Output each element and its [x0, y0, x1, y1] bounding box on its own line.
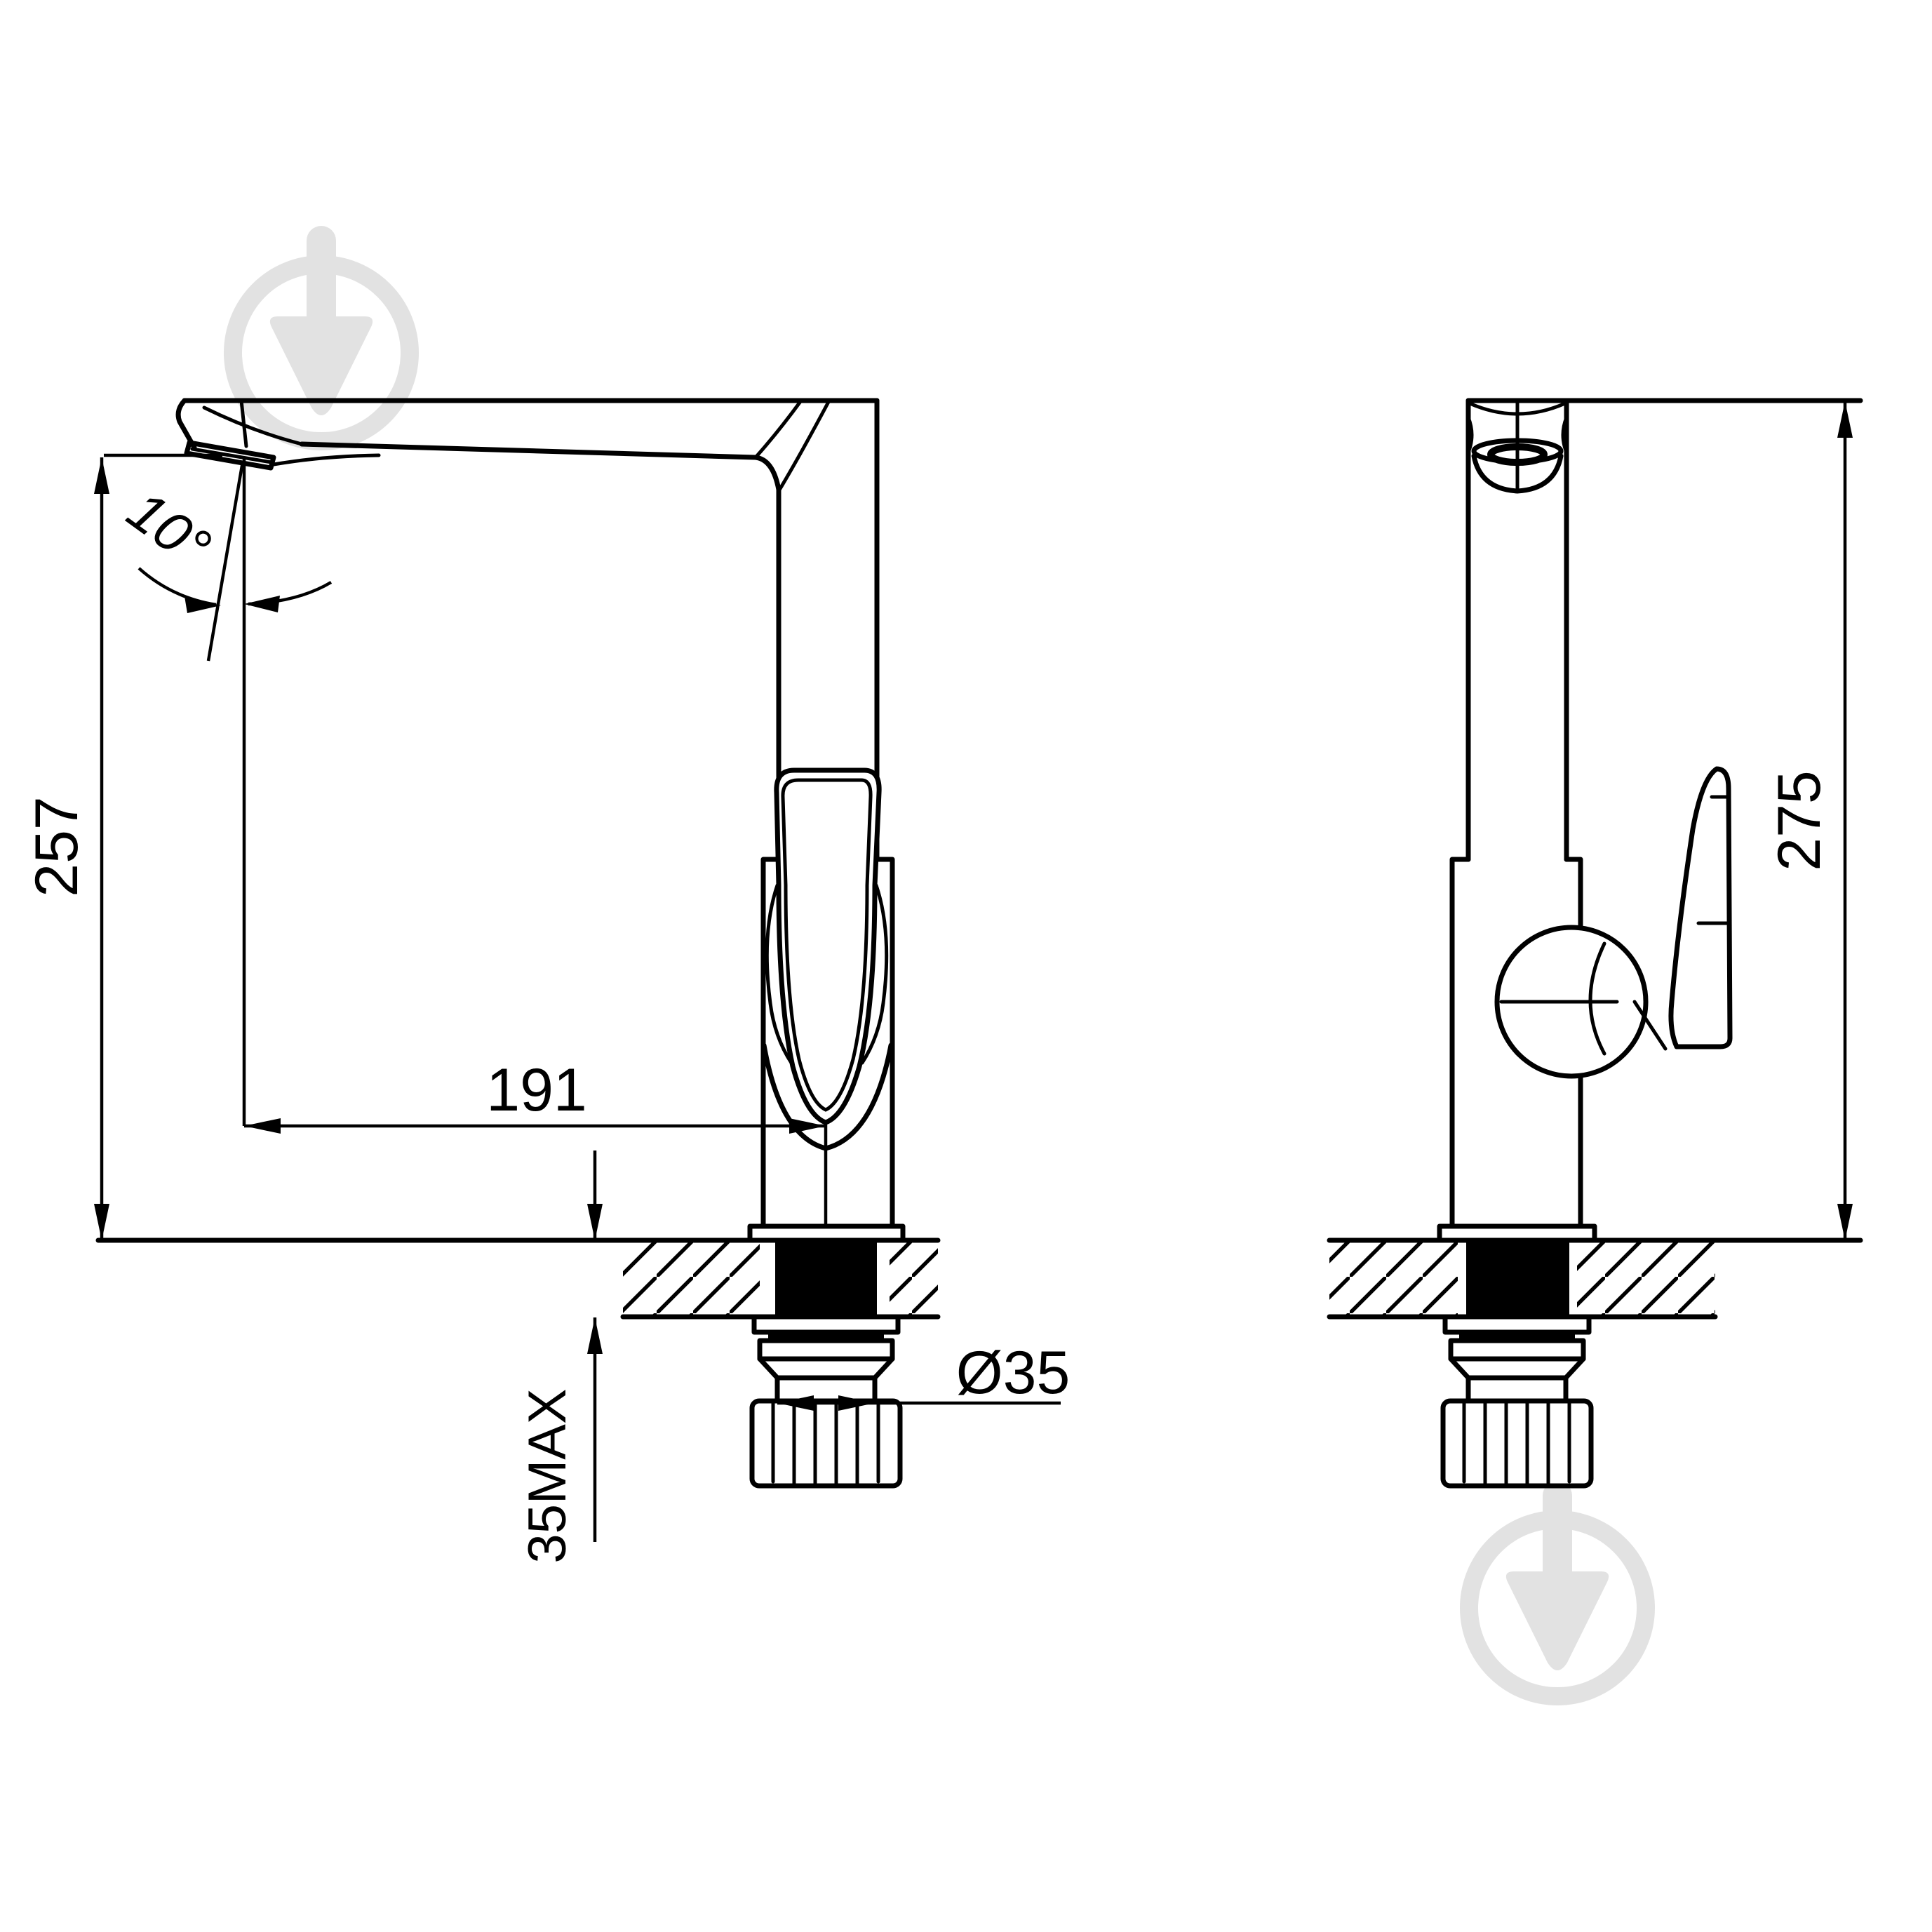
threaded-shank: [1466, 1240, 1569, 1317]
dimension-label-angle: 10°: [116, 478, 222, 579]
mounting-hardware: [1443, 1317, 1591, 1486]
dimension-label-spout-height: 257: [23, 796, 90, 897]
dimension-label-spout-reach: 191: [486, 1056, 587, 1124]
deck-thickness-dimension: 35MAX: [518, 1151, 603, 1564]
total-height-dimension: 275: [1766, 401, 1853, 1240]
base-flange: [1440, 1226, 1595, 1240]
height-dimension: 257: [23, 455, 222, 1240]
valve-housing: [1497, 927, 1665, 1076]
dimension-label-hole-diameter: Ø35: [956, 1339, 1071, 1407]
faucet-technical-drawing: 10° 257 191 35MAX: [0, 0, 1932, 1932]
side-view: 10° 257 191 35MAX: [23, 401, 1070, 1564]
reach-dimension: 191: [244, 1056, 826, 1134]
watermark-logo-icon: [1469, 1481, 1646, 1696]
angle-dimension: 10°: [116, 457, 331, 1126]
handle-lever: [767, 770, 886, 1122]
mounting-hardware: [752, 1317, 900, 1486]
base-flange: [750, 1226, 903, 1240]
dimension-label-total-height: 275: [1766, 770, 1833, 871]
watermark-logo-icon: [233, 226, 410, 441]
handle-lever: [1671, 769, 1730, 1047]
spout-outlet: [1468, 402, 1567, 491]
countertop-section: [1329, 1240, 1860, 1317]
front-view: 275: [1329, 401, 1860, 1486]
threaded-shank: [775, 1240, 877, 1317]
dimension-label-deck-thickness: 35MAX: [518, 1388, 577, 1563]
